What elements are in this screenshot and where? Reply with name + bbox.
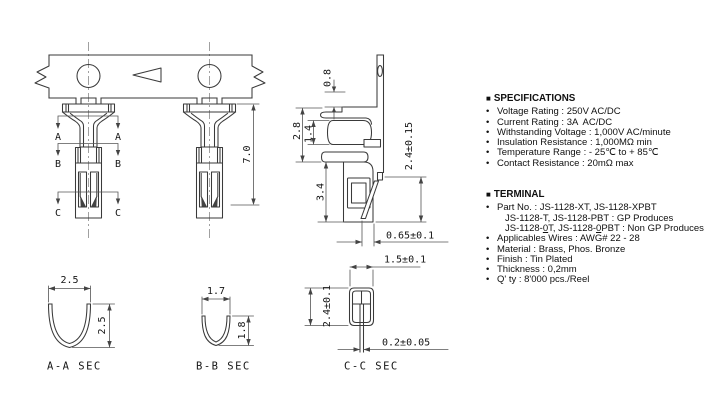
spec-item-text: Contact Resistance : 20mΩ max	[497, 159, 633, 169]
dimension-0-2: 0.2±0.05	[338, 338, 448, 352]
sprocket-hole-edge	[378, 66, 383, 77]
dim-label-aa-height: 2.5	[97, 316, 108, 334]
section-b-label: B	[55, 159, 61, 170]
dimension-bb-width: 1.7	[202, 286, 230, 314]
square-marker-icon: ■	[486, 94, 491, 103]
front-view-drawing: A A B B C C 7.0	[35, 42, 265, 240]
terminal-item-qty: •Q' ty : 8'000 pcs./Reel	[486, 275, 722, 285]
dim-label-bb-height: 1.8	[237, 321, 248, 339]
dimension-aa-width: 2.5	[49, 275, 91, 302]
specifications-title: ■SPECIFICATIONS	[486, 94, 722, 104]
section-c-label: C	[115, 208, 121, 219]
dim-label-0-2: 0.2±0.05	[382, 338, 430, 349]
dim-label-bb-width: 1.7	[207, 286, 225, 297]
aa-u-shape	[49, 304, 91, 348]
bullet-icon: •	[486, 275, 497, 285]
section-aa-drawing: 2.5 2.5 A-A SEC	[47, 275, 115, 373]
specs-terminal-panel: ■SPECIFICATIONS •Voltage Rating : 250V A…	[486, 94, 722, 286]
dimension-1-5: 1.5±0.1	[350, 255, 426, 287]
break-line-left	[35, 55, 49, 98]
section-line-a: A A	[55, 116, 121, 143]
dimension-7-0: 7.0	[231, 104, 259, 205]
dim-label-aa-width: 2.5	[60, 275, 78, 286]
dim-label-3-4: 3.4	[316, 183, 327, 201]
dimension-1-4: 1.4	[304, 121, 330, 145]
rear-tab	[378, 173, 383, 181]
dim-label-1-4: 1.4	[304, 125, 315, 143]
section-line-c: C C	[55, 192, 121, 219]
lower-finger	[322, 152, 369, 162]
side-view-drawing: 0.8 2.8 1.4 3.4 2.4±0.15 0.65±0.1	[292, 55, 448, 246]
section-bb-title: B-B SEC	[196, 361, 251, 373]
section-cc-drawing: 1.5±0.1 2.4±0.1 0.2±0.05 C-C SEC	[305, 255, 448, 373]
terminal-spec-sheet: A A B B C C 7.0	[0, 0, 722, 415]
specifications-title-text: SPECIFICATIONS	[494, 93, 575, 104]
cc-seam	[353, 291, 371, 352]
bb-u-shape	[202, 316, 230, 346]
square-marker-icon: ■	[486, 190, 491, 199]
dim-label-2-4-01: 2.4±0.1	[322, 285, 333, 327]
dimension-aa-height: 2.5	[73, 304, 115, 348]
dimension-2-4-01: 2.4±0.1	[305, 285, 348, 327]
bullet-icon: •	[486, 203, 497, 213]
section-cc-title: C-C SEC	[344, 361, 399, 373]
dim-label-2-4-015: 2.4±0.15	[404, 122, 415, 170]
dim-label-2-8: 2.8	[292, 122, 303, 140]
side-tab	[364, 140, 381, 148]
bullet-icon: •	[486, 159, 497, 169]
break-line-right	[252, 55, 265, 98]
section-c-label: C	[55, 208, 61, 219]
dim-label-0-8: 0.8	[323, 69, 334, 87]
centerline	[89, 42, 210, 240]
dim-label-0-65: 0.65±0.1	[386, 231, 434, 242]
terminal-title-text: TERMINAL	[494, 189, 545, 200]
section-b-label: B	[115, 159, 121, 170]
dim-label-1-5: 1.5±0.1	[384, 255, 426, 266]
section-aa-title: A-A SEC	[47, 361, 102, 373]
section-a-label: A	[55, 132, 61, 143]
dimension-0-65: 0.65±0.1	[337, 221, 448, 246]
spec-item-contact: •Contact Resistance : 20mΩ max	[486, 159, 722, 169]
section-bb-drawing: 1.7 1.8 B-B SEC	[196, 286, 254, 373]
section-a-label: A	[115, 132, 121, 143]
feed-direction-triangle-icon	[133, 68, 161, 82]
dimension-3-4: 3.4	[316, 162, 345, 222]
terminal-title: ■TERMINAL	[486, 190, 722, 200]
dim-label-7-0: 7.0	[242, 145, 253, 163]
terminal-item-text: Q' ty : 8'000 pcs./Reel	[497, 275, 589, 285]
